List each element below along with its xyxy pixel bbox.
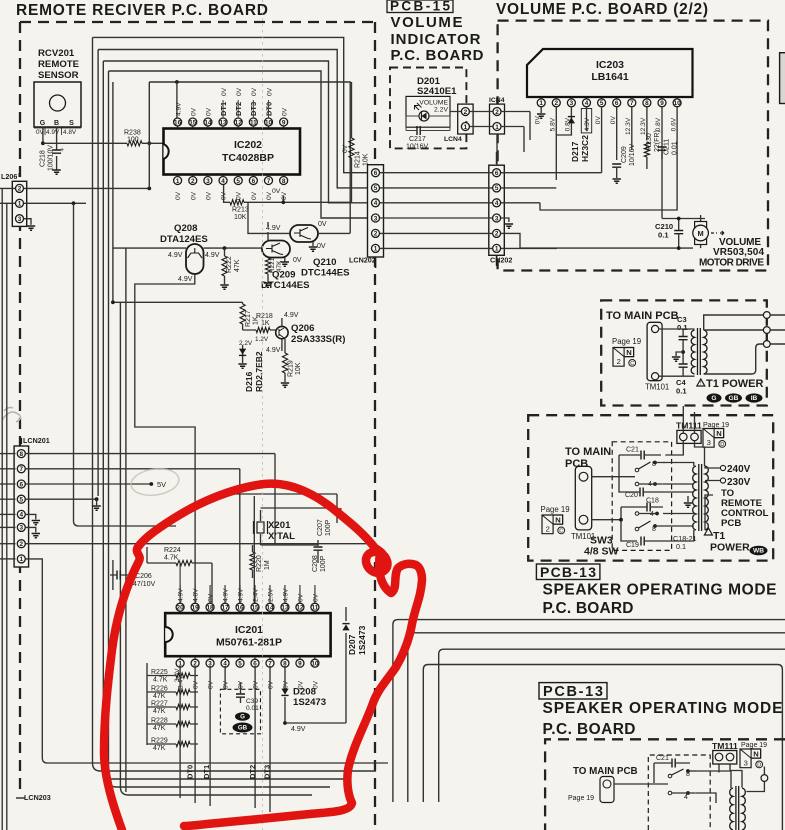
svg-text:D: D bbox=[720, 442, 724, 448]
svg-text:C: C bbox=[630, 361, 634, 367]
svg-text:4/8 SW: 4/8 SW bbox=[584, 546, 619, 558]
svg-text:15: 15 bbox=[251, 605, 259, 612]
svg-text:DT2: DT2 bbox=[248, 765, 257, 779]
svg-text:0.01: 0.01 bbox=[672, 141, 679, 155]
svg-text:S: S bbox=[69, 120, 74, 127]
svg-text:5: 5 bbox=[495, 185, 499, 192]
svg-text:DT3: DT3 bbox=[263, 765, 272, 779]
svg-text:DT0: DT0 bbox=[186, 765, 195, 779]
svg-text:3: 3 bbox=[707, 438, 711, 447]
svg-text:+: + bbox=[60, 147, 64, 154]
svg-text:5: 5 bbox=[374, 185, 378, 192]
svg-text:7: 7 bbox=[20, 466, 24, 473]
svg-text:0.1: 0.1 bbox=[676, 542, 686, 551]
svg-text:0V: 0V bbox=[283, 680, 290, 689]
svg-text:12.3V: 12.3V bbox=[640, 117, 647, 135]
svg-text:10: 10 bbox=[265, 119, 273, 126]
svg-text:R222: R222 bbox=[226, 256, 233, 273]
svg-text:0.01: 0.01 bbox=[246, 705, 259, 712]
svg-text:Q206: Q206 bbox=[291, 323, 314, 334]
svg-text:100/10V: 100/10V bbox=[48, 145, 55, 171]
svg-text:0V: 0V bbox=[205, 191, 212, 200]
svg-text:11: 11 bbox=[312, 605, 319, 612]
svg-text:4: 4 bbox=[495, 200, 499, 207]
svg-text:G: G bbox=[711, 395, 716, 402]
svg-text:1: 1 bbox=[374, 246, 378, 253]
svg-text:2.2V: 2.2V bbox=[434, 107, 448, 114]
svg-text:0.8V: 0.8V bbox=[655, 117, 662, 131]
svg-text:4.9V: 4.9V bbox=[223, 588, 230, 602]
svg-text:D208: D208 bbox=[293, 687, 317, 698]
svg-text:6: 6 bbox=[252, 178, 256, 185]
svg-text:1: 1 bbox=[495, 246, 499, 253]
svg-text:4.9V: 4.9V bbox=[168, 252, 183, 259]
svg-text:0V: 0V bbox=[342, 144, 349, 153]
svg-text:5: 5 bbox=[238, 661, 242, 668]
svg-text:C21: C21 bbox=[626, 447, 639, 454]
svg-text:T1 POWER: T1 POWER bbox=[706, 378, 764, 390]
svg-text:10: 10 bbox=[311, 661, 319, 668]
svg-text:22(FR): 22(FR) bbox=[654, 130, 661, 152]
svg-text:C: C bbox=[559, 529, 563, 535]
svg-text:2.4V: 2.4V bbox=[253, 588, 260, 602]
svg-text:GB: GB bbox=[238, 725, 248, 732]
svg-text:0V: 0V bbox=[206, 107, 213, 116]
svg-text:0.1: 0.1 bbox=[676, 387, 687, 396]
svg-text:Page 19: Page 19 bbox=[541, 505, 570, 514]
svg-text:C217: C217 bbox=[409, 136, 426, 143]
svg-text:TO MAIN PCB: TO MAIN PCB bbox=[573, 766, 638, 777]
svg-text:D: D bbox=[757, 763, 761, 769]
svg-text:N: N bbox=[716, 429, 721, 438]
svg-text:3: 3 bbox=[20, 525, 24, 532]
svg-text:4.9V: 4.9V bbox=[266, 225, 281, 232]
svg-text:1: 1 bbox=[18, 201, 22, 208]
svg-text:D207: D207 bbox=[347, 634, 357, 655]
svg-text:8: 8 bbox=[282, 178, 286, 185]
svg-text:RCV201: RCV201 bbox=[38, 48, 75, 59]
svg-text:1S2473: 1S2473 bbox=[357, 625, 367, 655]
svg-text:R218: R218 bbox=[256, 313, 273, 320]
svg-text:100P: 100P bbox=[320, 555, 327, 572]
svg-text:2: 2 bbox=[18, 186, 22, 193]
svg-text:LCN4: LCN4 bbox=[444, 136, 462, 143]
svg-text:5: 5 bbox=[600, 100, 604, 107]
svg-text:16: 16 bbox=[236, 605, 244, 612]
svg-text:4.8V: 4.8V bbox=[193, 588, 200, 602]
svg-text:3: 3 bbox=[18, 216, 22, 223]
svg-text:5V: 5V bbox=[157, 480, 166, 489]
svg-text:4.8V: 4.8V bbox=[63, 129, 77, 136]
svg-text:LCN202: LCN202 bbox=[349, 256, 376, 265]
svg-text:P.C. BOARD: P.C. BOARD bbox=[543, 721, 636, 738]
svg-text:8: 8 bbox=[645, 100, 649, 107]
svg-text:0V: 0V bbox=[610, 116, 617, 125]
svg-text:4.9V: 4.9V bbox=[284, 312, 299, 319]
svg-text:12.3V: 12.3V bbox=[625, 117, 632, 135]
svg-text:7: 7 bbox=[630, 100, 634, 107]
svg-text:R214: R214 bbox=[355, 151, 362, 168]
svg-text:2: 2 bbox=[546, 525, 550, 534]
svg-text:VR503,504: VR503,504 bbox=[713, 247, 764, 258]
svg-text:230V: 230V bbox=[727, 477, 751, 488]
svg-text:0V: 0V bbox=[272, 188, 281, 195]
svg-text:SPEAKER OPERATING MODE: SPEAKER OPERATING MODE bbox=[543, 582, 777, 599]
svg-text:Page 19: Page 19 bbox=[741, 742, 767, 749]
svg-text:0V: 0V bbox=[253, 680, 260, 689]
svg-text:S2410E1: S2410E1 bbox=[417, 86, 457, 97]
svg-text:MOTOR DRIVE: MOTOR DRIVE bbox=[699, 258, 764, 269]
svg-text:PCB-13: PCB-13 bbox=[540, 564, 596, 580]
svg-text:SENSOR: SENSOR bbox=[38, 70, 79, 81]
svg-text:4.9V: 4.9V bbox=[46, 129, 60, 136]
svg-text:0V: 0V bbox=[191, 107, 198, 116]
svg-text:18: 18 bbox=[207, 605, 215, 612]
svg-text:C218: C218 bbox=[40, 150, 47, 167]
svg-text:0V: 0V bbox=[317, 243, 326, 250]
svg-text:2: 2 bbox=[464, 109, 468, 116]
svg-text:LCN201: LCN201 bbox=[23, 436, 50, 445]
svg-text:4.7K: 4.7K bbox=[153, 677, 168, 684]
svg-text:4.9V: 4.9V bbox=[178, 276, 193, 283]
svg-text:1.2V: 1.2V bbox=[255, 336, 269, 343]
svg-text:C20: C20 bbox=[625, 492, 638, 499]
svg-text:2: 2 bbox=[20, 541, 24, 548]
svg-text:N: N bbox=[753, 750, 758, 759]
svg-text:1S2473: 1S2473 bbox=[293, 697, 326, 708]
svg-text:IC201: IC201 bbox=[235, 624, 263, 636]
svg-text:3: 3 bbox=[744, 759, 748, 768]
svg-text:4.9V: 4.9V bbox=[175, 102, 182, 116]
svg-text:4.9V: 4.9V bbox=[205, 252, 220, 259]
svg-text:INDICATOR: INDICATOR bbox=[391, 31, 481, 48]
svg-text:100P: 100P bbox=[325, 519, 332, 536]
svg-text:1: 1 bbox=[495, 124, 499, 131]
svg-text:6: 6 bbox=[495, 170, 499, 177]
svg-text:19: 19 bbox=[192, 605, 200, 612]
svg-text:47K: 47K bbox=[153, 745, 166, 752]
svg-text:R224: R224 bbox=[164, 547, 181, 554]
svg-text:1: 1 bbox=[176, 178, 180, 185]
svg-text:C18: C18 bbox=[646, 498, 659, 505]
svg-text:4.7K: 4.7K bbox=[164, 555, 179, 562]
svg-text:0V: 0V bbox=[266, 87, 273, 96]
svg-text:0V: 0V bbox=[251, 87, 258, 96]
svg-text:M: M bbox=[698, 229, 704, 238]
svg-text:2: 2 bbox=[617, 357, 621, 366]
svg-text:N: N bbox=[555, 516, 560, 525]
svg-text:4.3V: 4.3V bbox=[584, 117, 591, 131]
svg-text:4: 4 bbox=[585, 100, 589, 107]
svg-text:47K: 47K bbox=[234, 259, 241, 272]
svg-text:4.9V: 4.9V bbox=[266, 347, 281, 354]
svg-text:14: 14 bbox=[266, 605, 274, 612]
svg-text:3: 3 bbox=[495, 215, 499, 222]
svg-text:0V: 0V bbox=[221, 87, 228, 96]
svg-text:N: N bbox=[626, 348, 631, 357]
svg-text:WB: WB bbox=[753, 548, 764, 555]
svg-text:4: 4 bbox=[221, 178, 225, 185]
svg-text:2SA333S(R): 2SA333S(R) bbox=[291, 334, 345, 345]
svg-text:4: 4 bbox=[650, 511, 654, 518]
svg-text:5: 5 bbox=[236, 178, 240, 185]
svg-text:0V: 0V bbox=[208, 680, 215, 689]
svg-text:VOLUME: VOLUME bbox=[419, 100, 448, 107]
svg-text:9: 9 bbox=[282, 119, 286, 126]
svg-text:7: 7 bbox=[267, 178, 271, 185]
svg-text:P.C. BOARD: P.C. BOARD bbox=[391, 47, 484, 64]
svg-text:POWER: POWER bbox=[710, 542, 750, 554]
svg-text:47K: 47K bbox=[153, 693, 166, 700]
svg-text:R238: R238 bbox=[124, 130, 141, 137]
svg-text:DTA124ES: DTA124ES bbox=[160, 234, 208, 245]
svg-text:12: 12 bbox=[235, 119, 243, 126]
svg-text:R219: R219 bbox=[288, 360, 295, 377]
svg-text:10/16V: 10/16V bbox=[406, 144, 429, 151]
svg-text:DTC144ES: DTC144ES bbox=[301, 268, 350, 279]
svg-text:DT1: DT1 bbox=[202, 765, 211, 779]
svg-text:0V: 0V bbox=[236, 87, 243, 96]
svg-text:2: 2 bbox=[555, 100, 559, 107]
svg-text:Page 19: Page 19 bbox=[612, 337, 641, 346]
svg-text:TM101: TM101 bbox=[645, 383, 669, 392]
svg-text:0V: 0V bbox=[318, 221, 327, 228]
svg-text:PCB-13: PCB-13 bbox=[543, 684, 603, 700]
svg-text:Q208: Q208 bbox=[174, 223, 198, 234]
svg-text:Q210: Q210 bbox=[313, 257, 336, 268]
svg-text:4: 4 bbox=[374, 200, 378, 207]
svg-text:G: G bbox=[40, 120, 46, 127]
svg-text:2: 2 bbox=[191, 178, 195, 185]
svg-text:9: 9 bbox=[660, 100, 664, 107]
svg-text:13: 13 bbox=[281, 605, 289, 612]
svg-text:4.9V: 4.9V bbox=[238, 588, 245, 602]
svg-text:LCN203: LCN203 bbox=[24, 793, 51, 802]
svg-text:C19: C19 bbox=[626, 542, 639, 549]
svg-text:4.9V: 4.9V bbox=[291, 726, 306, 733]
svg-text:D216: D216 bbox=[244, 371, 254, 392]
svg-text:10K: 10K bbox=[234, 214, 247, 221]
svg-text:2.2V: 2.2V bbox=[239, 340, 253, 347]
svg-text:HZ3C2: HZ3C2 bbox=[580, 135, 590, 162]
svg-text:IB: IB bbox=[751, 395, 758, 402]
svg-text:2: 2 bbox=[495, 231, 499, 238]
svg-text:TM111: TM111 bbox=[676, 421, 702, 431]
svg-text:1: 1 bbox=[20, 556, 24, 563]
svg-text:0.1: 0.1 bbox=[658, 231, 669, 240]
svg-text:P.C. BOARD: P.C. BOARD bbox=[543, 600, 634, 617]
svg-text:R213: R213 bbox=[232, 207, 249, 214]
svg-text:0V: 0V bbox=[190, 191, 197, 200]
svg-text:PCB: PCB bbox=[565, 458, 588, 470]
svg-text:Page 19: Page 19 bbox=[568, 795, 594, 802]
svg-text:GB: GB bbox=[729, 395, 739, 402]
svg-text:10K: 10K bbox=[295, 362, 302, 375]
svg-text:TM111: TM111 bbox=[712, 741, 738, 751]
svg-text:REMOTE: REMOTE bbox=[38, 59, 80, 70]
svg-text:SPEAKER OPERATING MODE: SPEAKER OPERATING MODE bbox=[543, 700, 783, 717]
svg-text:20: 20 bbox=[177, 605, 185, 612]
svg-text:0V: 0V bbox=[208, 593, 215, 602]
svg-text:C209: C209 bbox=[621, 146, 628, 163]
svg-text:R221: R221 bbox=[269, 257, 276, 273]
svg-text:2: 2 bbox=[495, 109, 499, 116]
svg-text:0V: 0V bbox=[236, 191, 243, 200]
svg-text:12: 12 bbox=[296, 605, 304, 612]
svg-text:0V: 0V bbox=[281, 191, 288, 200]
svg-text:0V: 0V bbox=[281, 107, 288, 116]
svg-text:VOLUME P.C. BOARD (2/2): VOLUME P.C. BOARD (2/2) bbox=[496, 1, 708, 18]
svg-text:0V: 0V bbox=[293, 257, 302, 264]
svg-text:B: B bbox=[54, 120, 59, 127]
svg-text:M50761-281P: M50761-281P bbox=[216, 637, 282, 649]
svg-text:REMOTE RECIVER P.C. BOARD: REMOTE RECIVER P.C. BOARD bbox=[16, 2, 268, 19]
svg-text:D217: D217 bbox=[570, 141, 580, 162]
svg-text:VOLUME: VOLUME bbox=[391, 14, 463, 31]
svg-text:0V: 0V bbox=[193, 680, 200, 689]
svg-text:1M: 1M bbox=[264, 560, 271, 570]
svg-text:R220: R220 bbox=[256, 555, 263, 572]
svg-text:TO MAIN PCB: TO MAIN PCB bbox=[606, 310, 679, 322]
svg-text:5.8V: 5.8V bbox=[550, 117, 557, 131]
svg-text:TC4028BP: TC4028BP bbox=[222, 152, 274, 164]
svg-text:6: 6 bbox=[374, 170, 378, 177]
svg-text:47K: 47K bbox=[153, 708, 166, 715]
svg-text:C39: C39 bbox=[246, 698, 258, 705]
svg-text:13: 13 bbox=[219, 119, 227, 126]
svg-text:15: 15 bbox=[189, 119, 197, 126]
svg-text:4.9V: 4.9V bbox=[283, 588, 290, 602]
svg-text:X201: X201 bbox=[268, 520, 291, 531]
svg-text:0V: 0V bbox=[268, 680, 275, 689]
svg-text:L206: L206 bbox=[1, 172, 17, 181]
svg-text:1: 1 bbox=[464, 124, 468, 131]
svg-text:10/16V: 10/16V bbox=[629, 143, 636, 166]
svg-text:240V: 240V bbox=[727, 464, 751, 475]
svg-text:3: 3 bbox=[570, 100, 574, 107]
svg-text:0V: 0V bbox=[175, 191, 182, 200]
svg-text:6: 6 bbox=[20, 481, 24, 488]
svg-text:0V: 0V bbox=[251, 191, 258, 200]
svg-text:0V: 0V bbox=[595, 116, 602, 125]
svg-text:C207: C207 bbox=[317, 519, 324, 536]
svg-text:PCB: PCB bbox=[721, 518, 741, 529]
svg-text:3: 3 bbox=[206, 178, 210, 185]
svg-text:4.9V: 4.9V bbox=[178, 588, 185, 602]
svg-text:4: 4 bbox=[20, 512, 24, 519]
svg-text:6: 6 bbox=[615, 100, 619, 107]
svg-text:0V: 0V bbox=[223, 680, 230, 689]
svg-text:11: 11 bbox=[250, 119, 257, 126]
svg-text:3: 3 bbox=[374, 215, 378, 222]
svg-text:2.5V: 2.5V bbox=[268, 588, 275, 602]
svg-text:C21: C21 bbox=[656, 755, 669, 762]
svg-text:47/10V: 47/10V bbox=[133, 581, 156, 588]
svg-text:0V: 0V bbox=[313, 593, 320, 602]
svg-text:8: 8 bbox=[20, 451, 24, 458]
svg-text:CN202: CN202 bbox=[490, 256, 512, 265]
svg-text:G: G bbox=[240, 714, 245, 721]
svg-text:2: 2 bbox=[374, 231, 378, 238]
svg-text:X’TAL: X’TAL bbox=[268, 531, 295, 542]
svg-text:LB1641: LB1641 bbox=[591, 71, 629, 83]
svg-text:47K: 47K bbox=[153, 725, 166, 732]
svg-text:47K: 47K bbox=[276, 260, 283, 272]
svg-text:TO MAIN: TO MAIN bbox=[565, 446, 611, 458]
svg-text:17: 17 bbox=[221, 605, 229, 612]
svg-text:4: 4 bbox=[684, 794, 688, 801]
svg-text:0.6V: 0.6V bbox=[670, 117, 677, 131]
svg-text:14: 14 bbox=[204, 119, 212, 126]
svg-text:IC202: IC202 bbox=[234, 139, 262, 151]
svg-text:IC203: IC203 bbox=[596, 59, 624, 71]
svg-text:T1: T1 bbox=[713, 530, 725, 542]
svg-text:9: 9 bbox=[298, 661, 302, 668]
svg-text:16: 16 bbox=[174, 119, 182, 126]
svg-text:10: 10 bbox=[674, 100, 682, 107]
svg-text:5: 5 bbox=[20, 497, 24, 504]
svg-text:R217: R217 bbox=[245, 310, 252, 327]
svg-text:0V: 0V bbox=[298, 593, 305, 602]
svg-text:1: 1 bbox=[539, 100, 543, 107]
